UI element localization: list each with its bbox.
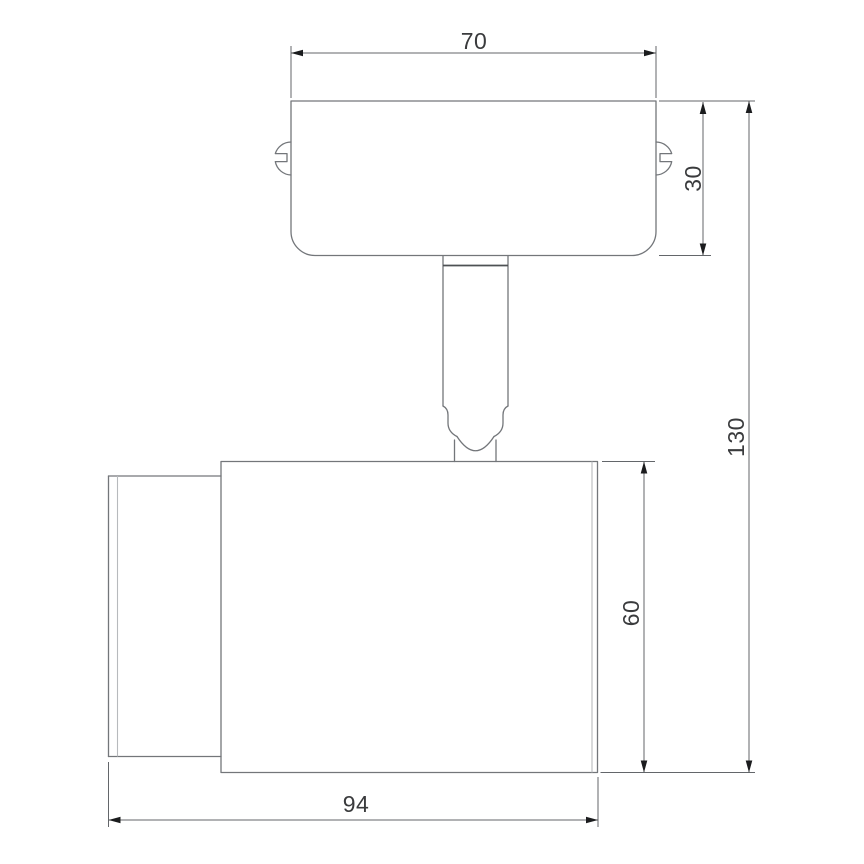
arrow-70-right xyxy=(644,50,656,57)
mounting-plate xyxy=(291,101,656,256)
dimension-label-body-length: 94 xyxy=(343,791,370,817)
arrow-94-left xyxy=(109,817,121,824)
arrow-130-bottom xyxy=(746,761,753,773)
drawing-canvas: 70 30 130 60 94 xyxy=(0,0,864,864)
dimension-label-top-width: 70 xyxy=(461,28,488,54)
lamp-body xyxy=(221,462,598,773)
object-outlines xyxy=(109,101,672,773)
swivel-joint-left xyxy=(443,406,457,437)
dimension-lines xyxy=(109,46,756,827)
swivel-joint-dome xyxy=(457,437,494,451)
dimension-label-body-height: 60 xyxy=(618,600,644,627)
arrow-30-bottom xyxy=(700,244,707,256)
arrow-60-bottom xyxy=(641,761,648,773)
left-screw-icon xyxy=(275,142,291,175)
arrow-30-top xyxy=(700,102,707,114)
dimension-label-total-height: 130 xyxy=(723,417,749,457)
arrow-70-left xyxy=(291,50,303,57)
dimension-label-plate-height: 30 xyxy=(680,165,706,192)
right-screw-icon xyxy=(656,142,672,175)
dimension-labels: 70 30 130 60 94 xyxy=(343,28,749,817)
swivel-joint-right xyxy=(494,406,508,437)
arrow-60-top xyxy=(641,462,648,474)
spotlight-technical-drawing: 70 30 130 60 94 xyxy=(0,0,864,864)
arrow-94-right xyxy=(586,817,598,824)
inner-highlight-lines xyxy=(118,462,593,773)
arrow-130-top xyxy=(746,101,753,113)
